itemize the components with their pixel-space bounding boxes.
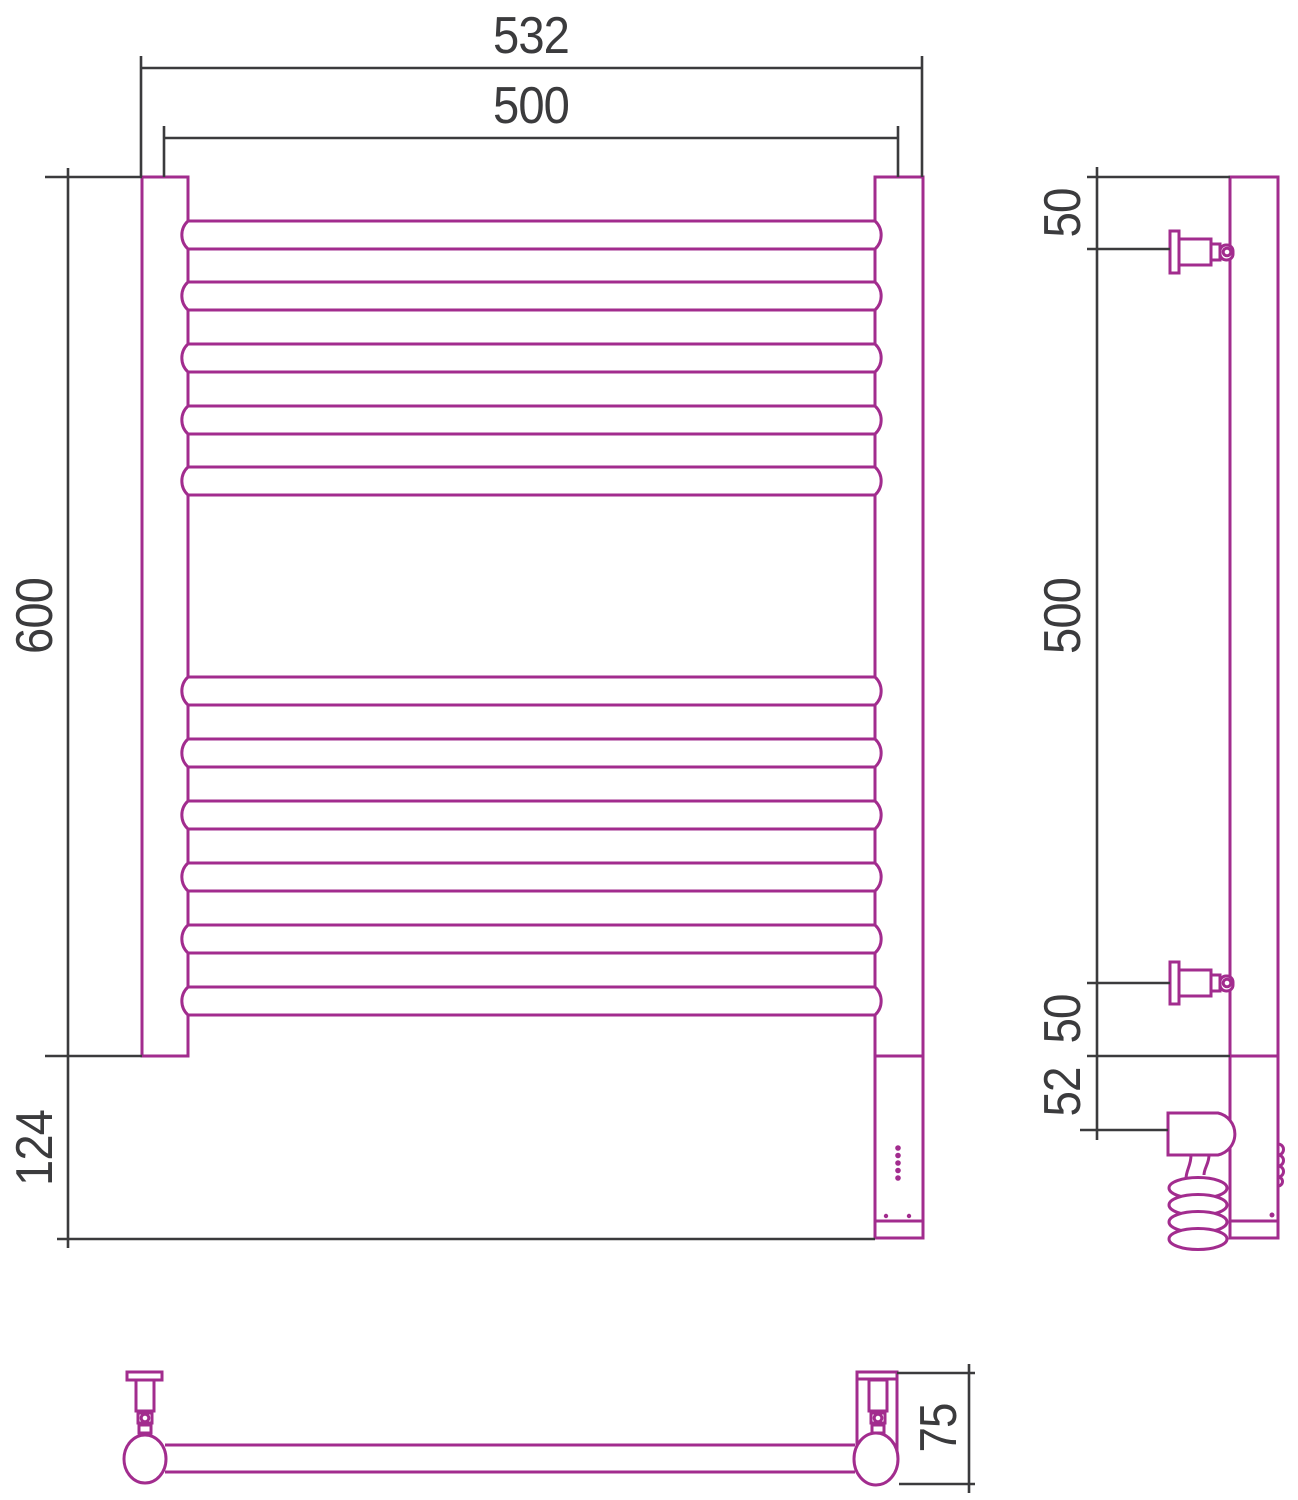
rung (182, 221, 881, 249)
side-rail (1230, 177, 1278, 1238)
bracket-body (869, 1380, 887, 1411)
rung (182, 677, 881, 705)
led-dot (895, 1168, 901, 1174)
cable-coil (1169, 1229, 1227, 1250)
rung (182, 344, 881, 372)
side-view (1168, 177, 1284, 1250)
technical-drawing-canvas: 532 500 600 124 50 500 50 52 75 (0, 0, 1298, 1500)
wall-bracket-bottom (1170, 962, 1233, 1004)
led-dot (895, 1160, 901, 1166)
spiral-cable (1169, 1178, 1227, 1250)
dim-text-outer-width: 532 (493, 7, 569, 65)
rail-end-circle-left (124, 1435, 166, 1483)
front-view (142, 177, 923, 1238)
bracket-screw (874, 1414, 882, 1422)
screw-dot (907, 1214, 911, 1218)
screw-dot (884, 1214, 888, 1218)
dim-text-top-bracket: 50 (1034, 189, 1092, 238)
bottom-bracket-left (127, 1372, 162, 1433)
side-screw-dot (1270, 1213, 1275, 1218)
rung (182, 406, 881, 434)
rung (182, 467, 881, 495)
rung (182, 863, 881, 891)
rung (182, 801, 881, 829)
bracket-cap (139, 1425, 151, 1433)
front-right-rail (875, 177, 923, 1238)
led-dot (895, 1175, 901, 1181)
dim-text-bottom-bracket: 50 (1034, 995, 1092, 1044)
dim-text-frame-height: 600 (6, 578, 64, 654)
dim-text-rail-spacing: 500 (493, 77, 569, 135)
rung (182, 925, 881, 953)
dim-text-bracket-span: 500 (1034, 578, 1092, 654)
bracket-body (1179, 239, 1211, 265)
rung (182, 282, 881, 310)
bottom-view (124, 1372, 898, 1485)
bracket-screw (141, 1414, 149, 1422)
towel-rail-drawing: 532 500 600 124 50 500 50 52 75 (0, 0, 1298, 1500)
bracket-body (136, 1380, 154, 1411)
bracket-body (1179, 970, 1211, 996)
dim-text-element-offset: 52 (1034, 1068, 1092, 1117)
rung (182, 739, 881, 767)
bracket-screw (1223, 248, 1231, 256)
wall-bracket-top (1170, 231, 1233, 273)
led-dot (895, 1145, 901, 1151)
bracket-screw (1223, 979, 1231, 987)
dim-text-lower-section: 124 (6, 1110, 64, 1186)
dim-text-depth: 75 (910, 1404, 968, 1453)
rung (182, 987, 881, 1015)
heating-element-housing (1168, 1113, 1235, 1155)
rail-end-circle-right (854, 1433, 898, 1485)
cable-neck (1186, 1155, 1209, 1179)
bottom-bracket-right (869, 1380, 887, 1433)
front-left-rail (142, 177, 188, 1056)
led-dot (895, 1153, 901, 1159)
